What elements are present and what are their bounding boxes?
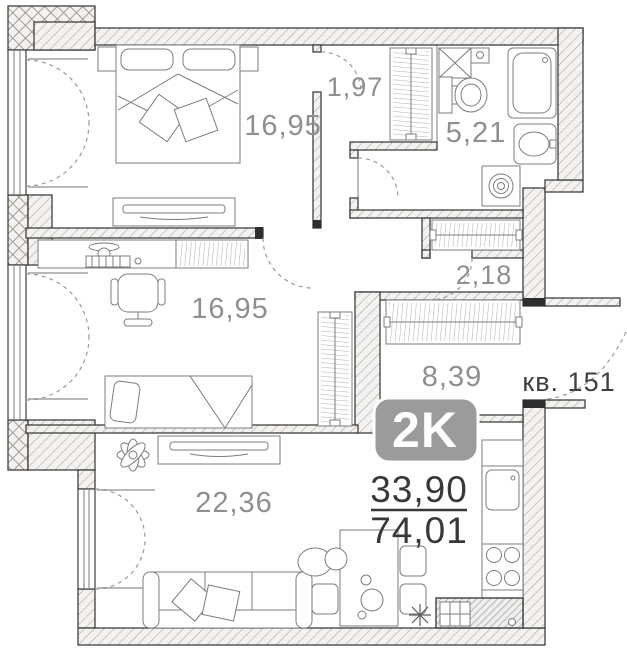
bedroom1-balcony-arc: [26, 60, 89, 123]
chair-icon: [400, 584, 426, 614]
bedroom1-area-label: 16,95: [244, 110, 322, 142]
toilet-icon: [439, 77, 452, 113]
living-area-label: 22,36: [195, 487, 273, 519]
pillow-icon: [109, 380, 140, 423]
office-chair-icon: [118, 274, 158, 312]
vestibule-area-label: 1,97: [327, 72, 384, 102]
closet-wardrobe: [430, 220, 522, 250]
tv-icon: [123, 205, 225, 213]
type-badge-label: 2K: [392, 402, 458, 458]
closet-area-label: 2,18: [456, 260, 513, 290]
bedroom2-balcony-arc: [26, 274, 89, 337]
bedroom1-furniture: [98, 45, 258, 226]
nightstand-icon: [240, 47, 258, 71]
plant-icon: [117, 439, 149, 471]
pillow-icon: [121, 49, 173, 70]
hallway-wardrobe: [384, 300, 522, 344]
living-area-total: 33,90: [370, 469, 468, 510]
bedroom1-window: [8, 50, 26, 195]
tv-icon: [170, 442, 268, 450]
pillow-icon: [183, 49, 235, 70]
bathroom-area-label: 5,21: [446, 117, 506, 149]
plate-icon: [361, 575, 371, 585]
apartment-number-label: кв. 151: [522, 367, 615, 397]
living-balcony-arc: [95, 489, 145, 539]
vestibule-wardrobe: [390, 48, 432, 140]
hallway-area-label: 8,39: [422, 361, 482, 393]
bedroom2-window: [8, 265, 26, 420]
apartment-summary: 2K 33,90 74,01: [370, 398, 478, 551]
living-balcony-door: [78, 489, 95, 589]
pillow-icon: [202, 585, 240, 621]
chair-icon: [312, 584, 338, 614]
sofa-icon: [143, 572, 312, 628]
floor-plan: 16,95 1,97 5,21 2,18 16,95 8,39 22,36 кв…: [0, 0, 627, 648]
mouse-icon: [135, 258, 141, 264]
snowflake-icon: [409, 604, 431, 626]
bedroom2-area-label: 16,95: [191, 293, 269, 325]
plate-icon: [361, 589, 383, 611]
keyboard-icon: [86, 256, 130, 267]
bathroom-door-arc: [358, 158, 398, 198]
bedroom2-door-arc: [263, 238, 313, 288]
washing-machine-icon: [482, 166, 520, 206]
nightstand-icon: [98, 47, 116, 71]
total-area: 74,01: [370, 510, 468, 551]
